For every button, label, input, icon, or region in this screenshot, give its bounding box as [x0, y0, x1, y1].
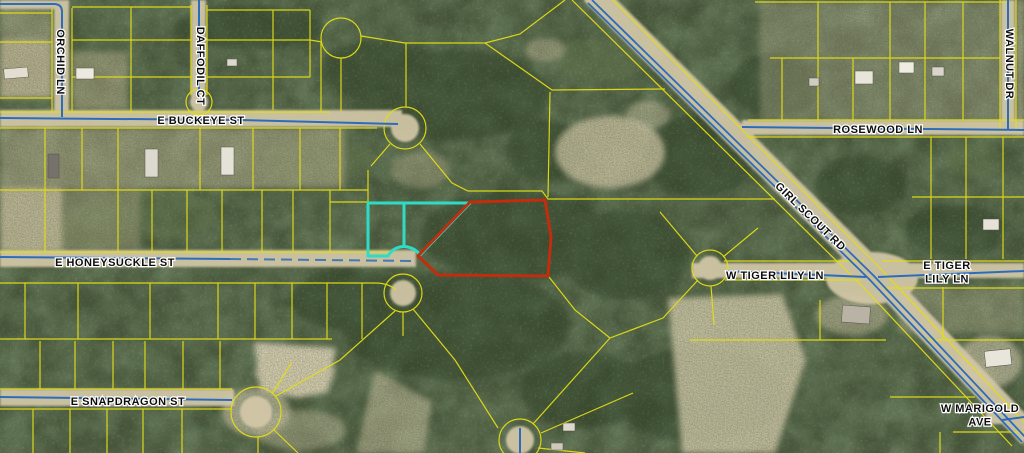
street-label-e-tiger-lily-ln: LILY LN	[925, 273, 969, 285]
street-label-e-snapdragon-st: E SNAPDRAGON ST	[71, 396, 185, 408]
aerial-parcel-map: ORCHID LNDAFFODIL CTE BUCKEYE STROSEWOOD…	[0, 0, 1024, 453]
map-viewport: ORCHID LNDAFFODIL CTE BUCKEYE STROSEWOOD…	[0, 0, 1024, 453]
street-label-e-buckeye-st: E BUCKEYE ST	[157, 115, 244, 127]
street-label-walnut-dr: WALNUT DR	[1003, 29, 1015, 100]
street-label-daffodil-ct: DAFFODIL CT	[194, 27, 206, 106]
street-label-rosewood-ln: ROSEWOOD LN	[833, 124, 923, 136]
street-label-e-tiger-lily-ln: E TIGER	[923, 260, 971, 272]
street-label-w-marigold-ave: AVE	[968, 416, 991, 428]
street-label-w-tiger-lily-ln: W TIGER LILY LN	[726, 270, 824, 282]
street-label-orchid-ln: ORCHID LN	[54, 29, 66, 95]
street-label-w-marigold-ave: W MARIGOLD	[941, 403, 1019, 415]
street-label-e-honeysuckle-st: E HONEYSUCKLE ST	[55, 257, 175, 269]
canopy-glints	[0, 0, 1024, 453]
